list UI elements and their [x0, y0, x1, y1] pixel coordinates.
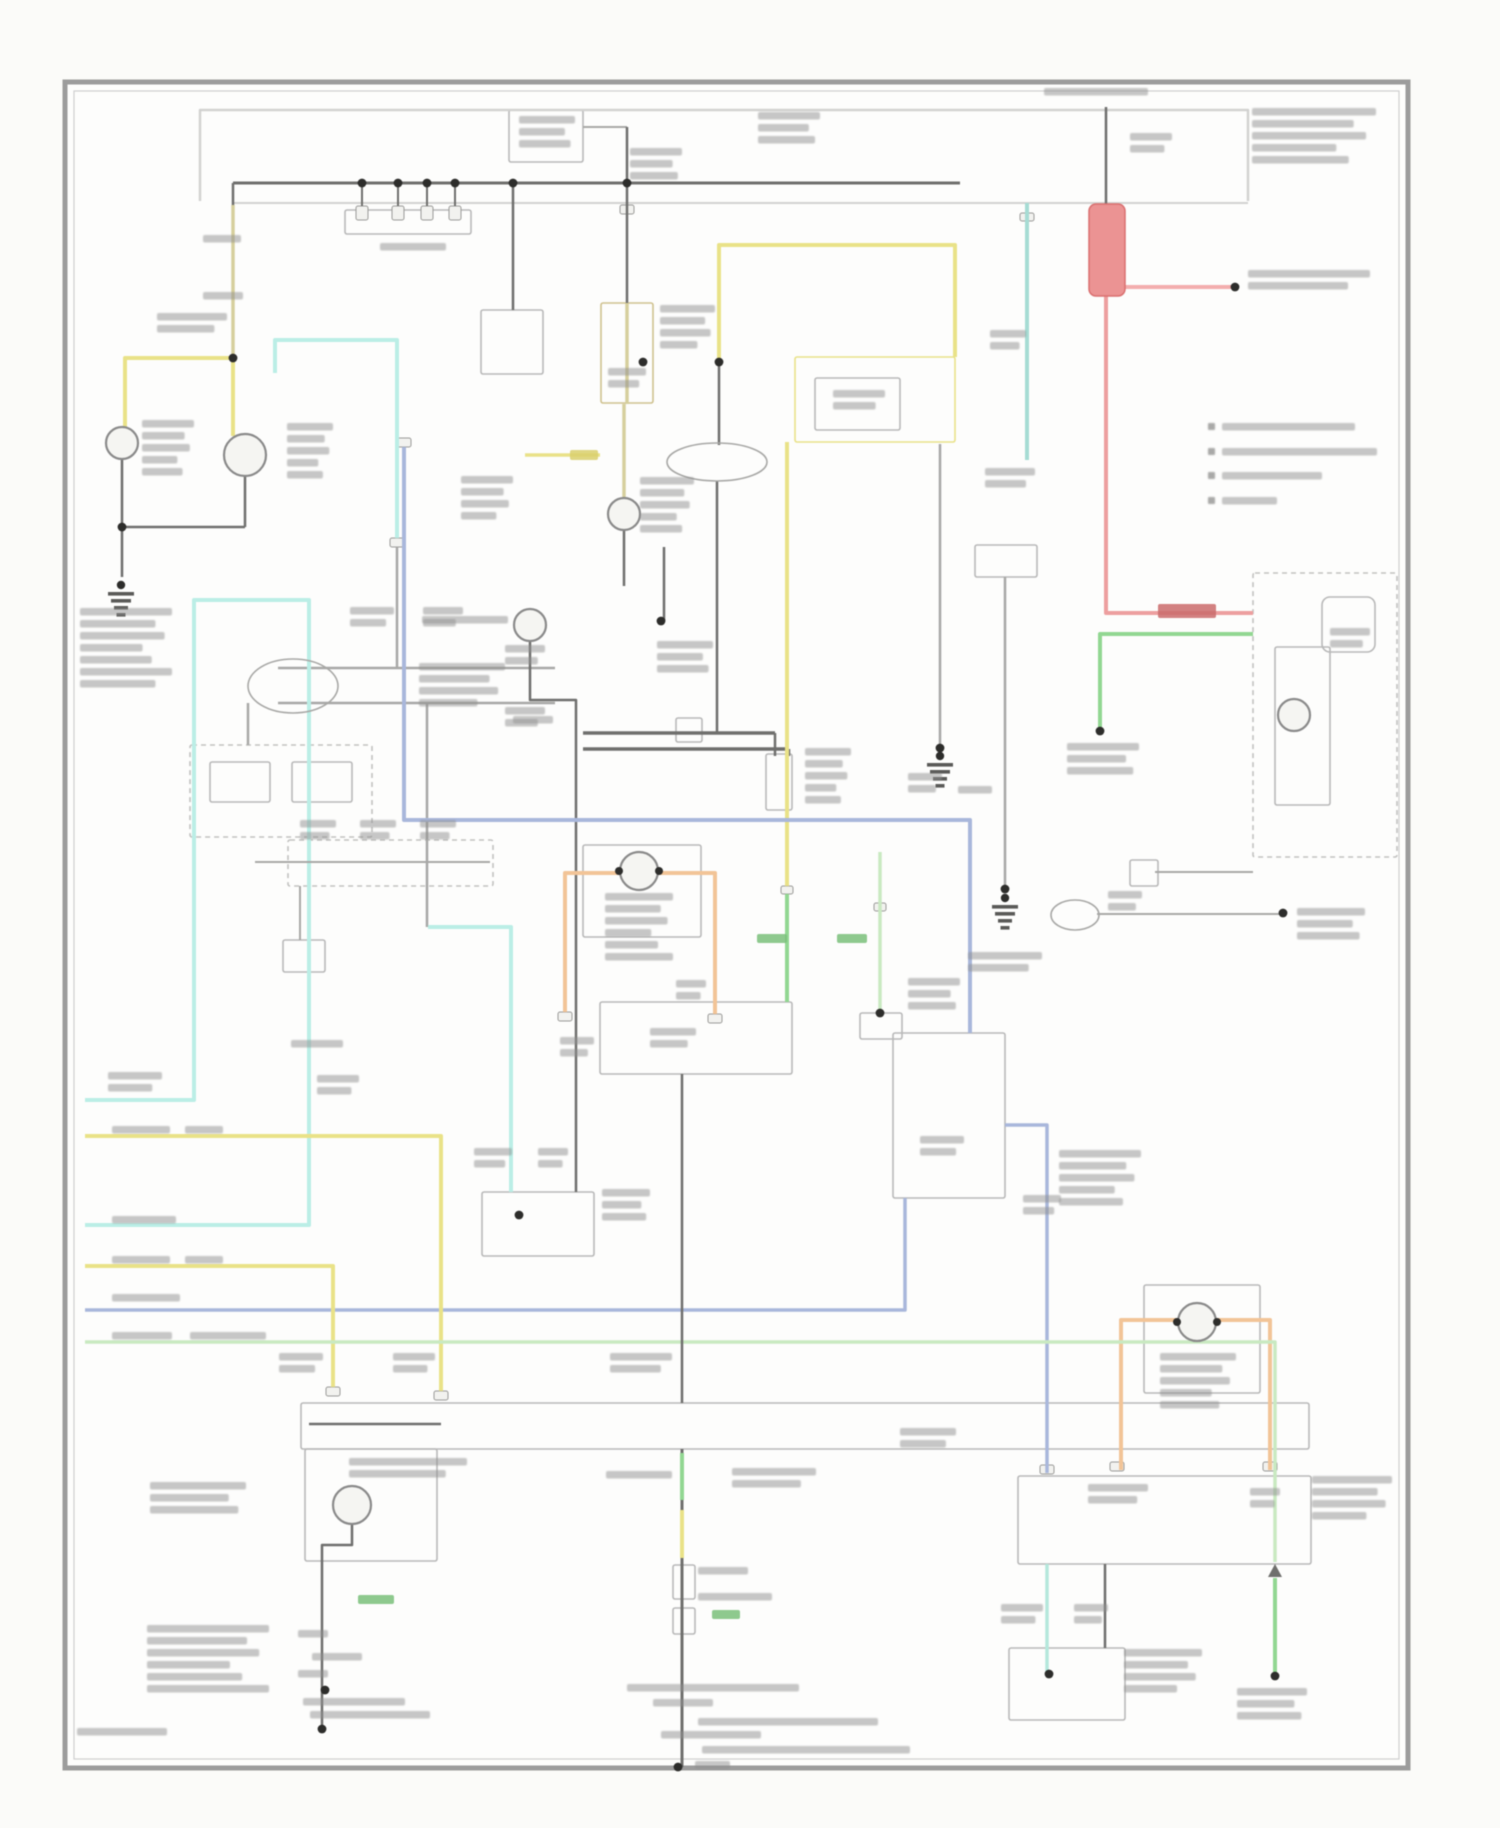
label-text-bar [538, 1148, 568, 1156]
splice-dot [1279, 909, 1288, 918]
connector-pin [449, 206, 461, 220]
label-text-bar [661, 1731, 761, 1739]
label-text-bar [287, 423, 333, 431]
label-text-bar [805, 784, 836, 792]
label-text-bar [627, 1684, 799, 1692]
label-text-bar [908, 785, 936, 793]
label-text-bar [1250, 1500, 1275, 1508]
label-text-bar [908, 773, 942, 781]
legend-item-number [1208, 472, 1215, 479]
label-text-bar [732, 1468, 816, 1476]
label-text-bar [147, 1637, 247, 1645]
label-text-bar [758, 124, 809, 132]
ground-bar [998, 919, 1012, 923]
label-text-bar [1044, 88, 1148, 96]
wiring-diagram-page [0, 0, 1500, 1828]
lamp-symbol [106, 427, 138, 459]
label-text-bar [461, 500, 509, 508]
lamp-terminal-dot [615, 867, 623, 875]
label-text-bar [287, 459, 318, 467]
label-text-bar [732, 1480, 801, 1488]
label-text-bar [1160, 1389, 1212, 1397]
label-text-bar [758, 136, 815, 144]
label-text-bar [419, 699, 477, 707]
label-block [77, 1728, 167, 1736]
label-text-bar [287, 435, 325, 443]
splice-dot [321, 1686, 330, 1695]
wire-code-chip [712, 1610, 740, 1619]
ground-dot [936, 752, 944, 760]
label-text-bar [695, 1761, 730, 1769]
splice-dot [1231, 283, 1240, 292]
label-text-bar [80, 608, 172, 616]
label-text-bar [1250, 1488, 1280, 1496]
connector-pin [390, 538, 404, 547]
label-text-bar [147, 1673, 242, 1681]
label-text-bar [505, 645, 545, 653]
label-text-bar [990, 330, 1026, 338]
label-text-bar [1252, 120, 1354, 128]
label-text-bar [657, 653, 703, 661]
label-text-bar [423, 607, 463, 615]
label-text-bar [310, 1711, 430, 1719]
lamp-symbol [514, 609, 546, 641]
label-text-bar [900, 1428, 956, 1436]
label-block [627, 1684, 799, 1692]
label-text-bar [1059, 1186, 1115, 1194]
label-text-bar [605, 917, 668, 925]
label-text-bar [142, 456, 177, 464]
label-text-bar [1059, 1150, 1141, 1158]
splice-dot [1096, 727, 1105, 736]
label-text-bar [640, 489, 684, 497]
connector-pin [708, 1014, 722, 1023]
label-text-bar [80, 656, 152, 664]
label-text-bar [908, 1002, 956, 1010]
label-text-bar [420, 832, 450, 840]
lamp-symbol [1278, 699, 1310, 731]
label-text-bar [298, 1630, 328, 1638]
label-text-bar [1160, 1365, 1222, 1373]
label-text-bar [519, 116, 575, 124]
lamp-symbol [620, 852, 658, 890]
lamp-symbol [224, 434, 266, 476]
label-text-bar [833, 402, 876, 410]
label-text-bar [147, 1625, 269, 1633]
label-text-bar [1067, 743, 1139, 751]
label-text-bar [142, 468, 183, 476]
label-text-bar [112, 1216, 176, 1224]
wire-code-chip [570, 450, 598, 460]
label-text-bar [758, 112, 820, 120]
label-text-bar [1237, 1712, 1301, 1720]
label-text-bar [1124, 1685, 1177, 1693]
label-text-bar [349, 1458, 467, 1466]
label-block [606, 1471, 672, 1479]
label-text-bar [380, 243, 446, 251]
label-text-bar [1108, 903, 1136, 911]
label-block [291, 1040, 343, 1048]
label-text-bar [203, 235, 241, 243]
label-text-bar [1001, 1604, 1043, 1612]
ground-bar [992, 905, 1018, 909]
label-text-bar [640, 477, 694, 485]
splice-dot [423, 179, 432, 188]
label-block [112, 1332, 172, 1340]
legend-item-number [1208, 448, 1215, 455]
label-text-bar [660, 317, 705, 325]
label-text-bar [461, 512, 496, 520]
splice-dot [1271, 1672, 1280, 1681]
label-text-bar [1130, 145, 1164, 153]
splice-dot [623, 179, 632, 188]
splice-dot [451, 179, 460, 188]
splice-dot [515, 1211, 524, 1220]
label-text-bar [640, 525, 682, 533]
label-text-bar [1067, 755, 1126, 763]
label-text-bar [968, 964, 1029, 972]
label-text-bar [185, 1256, 223, 1264]
label-text-bar [157, 313, 227, 321]
label-text-bar [1252, 108, 1376, 116]
label-block [958, 786, 992, 794]
label-text-bar [80, 680, 155, 688]
label-text-bar [650, 1028, 696, 1036]
ground-bar [108, 592, 134, 596]
label-block [112, 1216, 176, 1224]
label-text-bar [698, 1593, 772, 1601]
label-block [203, 292, 243, 300]
label-text-bar [1124, 1673, 1196, 1681]
label-text-bar [1237, 1688, 1307, 1696]
connector-pin [356, 206, 368, 220]
legend-item-text-bar [1222, 472, 1322, 480]
label-text-bar [920, 1148, 956, 1156]
ground-bar [111, 599, 131, 603]
label-text-bar [985, 468, 1035, 476]
label-text-bar [602, 1201, 641, 1209]
label-text-bar [805, 772, 847, 780]
label-block [380, 243, 446, 251]
label-text-bar [676, 992, 701, 1000]
label-text-bar [1160, 1377, 1230, 1385]
label-text-bar [1237, 1700, 1294, 1708]
label-block [661, 1731, 761, 1739]
label-text-bar [608, 380, 639, 388]
lamp-symbol [1178, 1303, 1216, 1341]
label-text-bar [560, 1037, 594, 1045]
label-text-bar [698, 1718, 878, 1726]
label-text-bar [1088, 1484, 1148, 1492]
legend-item-text-bar [1222, 423, 1355, 431]
wiring-diagram-canvas [0, 0, 1500, 1828]
splice-dot [318, 1725, 327, 1734]
label-text-bar [422, 616, 508, 624]
label-text-bar [513, 716, 553, 724]
label-text-bar [461, 476, 513, 484]
label-text-bar [112, 1256, 170, 1264]
label-text-bar [1023, 1195, 1061, 1203]
label-text-bar [698, 1567, 748, 1575]
legend-item-text-bar [1222, 448, 1377, 456]
label-text-bar [142, 420, 194, 428]
label-text-bar [150, 1506, 238, 1514]
connector-pin [397, 438, 411, 447]
label-text-bar [1297, 932, 1360, 940]
ground-bar [1001, 926, 1010, 930]
label-text-bar [1130, 133, 1172, 141]
label-text-bar [985, 480, 1026, 488]
label-text-bar [660, 341, 697, 349]
label-text-bar [805, 760, 843, 768]
label-text-bar [505, 657, 538, 665]
label-text-bar [640, 513, 677, 521]
label-text-bar [505, 707, 545, 715]
label-text-bar [360, 820, 396, 828]
label-text-bar [1059, 1162, 1126, 1170]
label-text-bar [650, 1040, 688, 1048]
label-text-bar [602, 1213, 646, 1221]
label-text-bar [605, 953, 673, 961]
label-text-bar [605, 893, 673, 901]
label-text-bar [1160, 1353, 1236, 1361]
splice-dot [639, 358, 648, 367]
label-text-bar [602, 1189, 650, 1197]
lamp-symbol [608, 498, 640, 530]
label-text-bar [1124, 1649, 1202, 1657]
label-text-bar [920, 1136, 964, 1144]
label-text-bar [77, 1728, 167, 1736]
label-block [203, 235, 241, 243]
label-text-bar [519, 140, 571, 148]
label-text-bar [279, 1365, 315, 1373]
label-text-bar [908, 990, 951, 998]
label-text-bar [190, 1332, 266, 1340]
label-text-bar [393, 1353, 435, 1361]
splice-dot [358, 179, 367, 188]
label-text-bar [150, 1494, 229, 1502]
label-text-bar [538, 1160, 563, 1168]
diagram-frame-border [65, 82, 1408, 1768]
connector-pin [421, 206, 433, 220]
label-text-bar [1059, 1198, 1123, 1206]
label-text-bar [519, 128, 565, 136]
label-text-bar [908, 978, 960, 986]
label-text-bar [80, 632, 165, 640]
label-text-bar [360, 832, 390, 840]
label-text-bar [630, 148, 682, 156]
label-text-bar [1297, 920, 1353, 928]
label-block [112, 1294, 180, 1302]
label-text-bar [303, 1698, 405, 1706]
splice-dot [657, 617, 666, 626]
label-text-bar [80, 620, 155, 628]
label-text-bar [657, 641, 713, 649]
label-text-bar [1023, 1207, 1054, 1215]
lamp-terminal-dot [655, 867, 663, 875]
label-block [185, 1126, 223, 1134]
wire-code-chip [358, 1595, 394, 1604]
label-text-bar [1312, 1488, 1378, 1496]
label-text-bar [1248, 270, 1370, 278]
label-text-bar [419, 675, 490, 683]
ground-dot [1001, 894, 1009, 902]
label-block [653, 1699, 713, 1707]
label-text-bar [1312, 1512, 1366, 1520]
label-text-bar [660, 305, 715, 313]
label-text-bar [349, 1470, 446, 1478]
label-text-bar [630, 160, 673, 168]
label-text-bar [660, 329, 711, 337]
label-block [298, 1630, 328, 1638]
label-text-bar [108, 1072, 162, 1080]
wire-code-chip [1158, 604, 1216, 618]
label-text-bar [112, 1332, 172, 1340]
label-text-bar [298, 1670, 328, 1678]
label-text-bar [657, 665, 709, 673]
label-text-bar [287, 447, 329, 455]
label-block [422, 616, 508, 624]
label-text-bar [350, 607, 394, 615]
label-text-bar [147, 1661, 230, 1669]
splice-dot [229, 354, 238, 363]
label-block [1044, 88, 1148, 96]
label-text-bar [317, 1075, 359, 1083]
label-text-bar [1160, 1401, 1219, 1409]
label-text-bar [474, 1148, 512, 1156]
label-block [513, 716, 553, 724]
label-text-bar [805, 796, 841, 804]
lamp-terminal-dot [1173, 1318, 1181, 1326]
label-text-bar [608, 368, 646, 376]
connector-pin [434, 1391, 448, 1400]
splice-dot [936, 744, 945, 753]
label-text-bar [1248, 282, 1348, 290]
label-text-bar [474, 1160, 505, 1168]
label-text-bar [150, 1482, 246, 1490]
label-text-bar [287, 471, 323, 479]
ground-bar [927, 763, 953, 767]
label-text-bar [80, 644, 143, 652]
splice-dot [876, 1009, 885, 1018]
label-text-bar [958, 786, 992, 794]
label-text-bar [560, 1049, 588, 1057]
label-text-bar [419, 663, 505, 671]
label-text-bar [312, 1653, 362, 1661]
ground-dot [117, 581, 125, 589]
label-block [112, 1126, 170, 1134]
legend-item-number [1208, 497, 1215, 504]
splice-dot [509, 179, 518, 188]
label-text-bar [968, 952, 1042, 960]
label-block [310, 1711, 430, 1719]
label-text-bar [1108, 891, 1142, 899]
wire-code-chip [837, 934, 867, 943]
label-text-bar [630, 172, 678, 180]
label-text-bar [1088, 1496, 1137, 1504]
label-text-bar [1252, 144, 1336, 152]
label-text-bar [1312, 1500, 1386, 1508]
label-text-bar [1252, 132, 1366, 140]
label-text-bar [393, 1365, 427, 1373]
label-text-bar [108, 1084, 152, 1092]
label-text-bar [605, 905, 661, 913]
splice-dot [674, 1763, 683, 1772]
label-text-bar [676, 980, 706, 988]
label-text-bar [185, 1126, 223, 1134]
label-text-bar [317, 1087, 351, 1095]
ground-bar [995, 912, 1015, 916]
label-block [185, 1256, 223, 1264]
label-text-bar [350, 619, 386, 627]
label-text-bar [461, 488, 504, 496]
connector-pin [558, 1012, 572, 1021]
label-text-bar [1312, 1476, 1392, 1484]
label-text-bar [606, 1471, 672, 1479]
label-text-bar [640, 501, 690, 509]
label-text-bar [279, 1353, 323, 1361]
label-text-bar [1124, 1661, 1188, 1669]
ground-bar [936, 784, 945, 788]
label-text-bar [1252, 156, 1349, 164]
label-text-bar [142, 432, 185, 440]
label-text-bar [1330, 628, 1370, 636]
wire-code-chip [757, 934, 787, 943]
legend-item-number [1208, 423, 1215, 430]
label-text-bar [1059, 1174, 1134, 1182]
label-text-bar [900, 1440, 946, 1448]
splice-dot [1045, 1670, 1054, 1679]
fusible-link-symbol [1089, 204, 1125, 296]
label-text-bar [1001, 1616, 1035, 1624]
label-block [190, 1332, 266, 1340]
label-text-bar [420, 820, 456, 828]
connector-pin [326, 1387, 340, 1396]
connector-pin [781, 886, 793, 894]
splice-dot [715, 358, 724, 367]
connector-pin [392, 206, 404, 220]
label-text-bar [1074, 1616, 1102, 1624]
label-block [312, 1653, 362, 1661]
label-text-bar [702, 1746, 910, 1754]
label-block [702, 1746, 910, 1754]
lamp-terminal-dot [1213, 1318, 1221, 1326]
label-text-bar [605, 941, 658, 949]
label-text-bar [1330, 640, 1363, 648]
splice-dot [118, 523, 127, 532]
label-block [298, 1670, 328, 1678]
label-text-bar [142, 444, 190, 452]
label-text-bar [291, 1040, 343, 1048]
label-text-bar [605, 929, 651, 937]
label-text-bar [653, 1699, 713, 1707]
label-block [698, 1593, 772, 1601]
splice-dot [394, 179, 403, 188]
label-text-bar [419, 687, 498, 695]
lamp-symbol [333, 1486, 371, 1524]
label-text-bar [147, 1685, 269, 1693]
label-text-bar [610, 1353, 672, 1361]
label-text-bar [1074, 1604, 1108, 1612]
label-text-bar [112, 1294, 180, 1302]
splice-dot [1001, 885, 1010, 894]
label-text-bar [80, 668, 172, 676]
label-block [112, 1256, 170, 1264]
label-text-bar [1067, 767, 1133, 775]
legend-item-text-bar [1222, 497, 1277, 505]
label-text-bar [147, 1649, 259, 1657]
label-text-bar [300, 820, 336, 828]
